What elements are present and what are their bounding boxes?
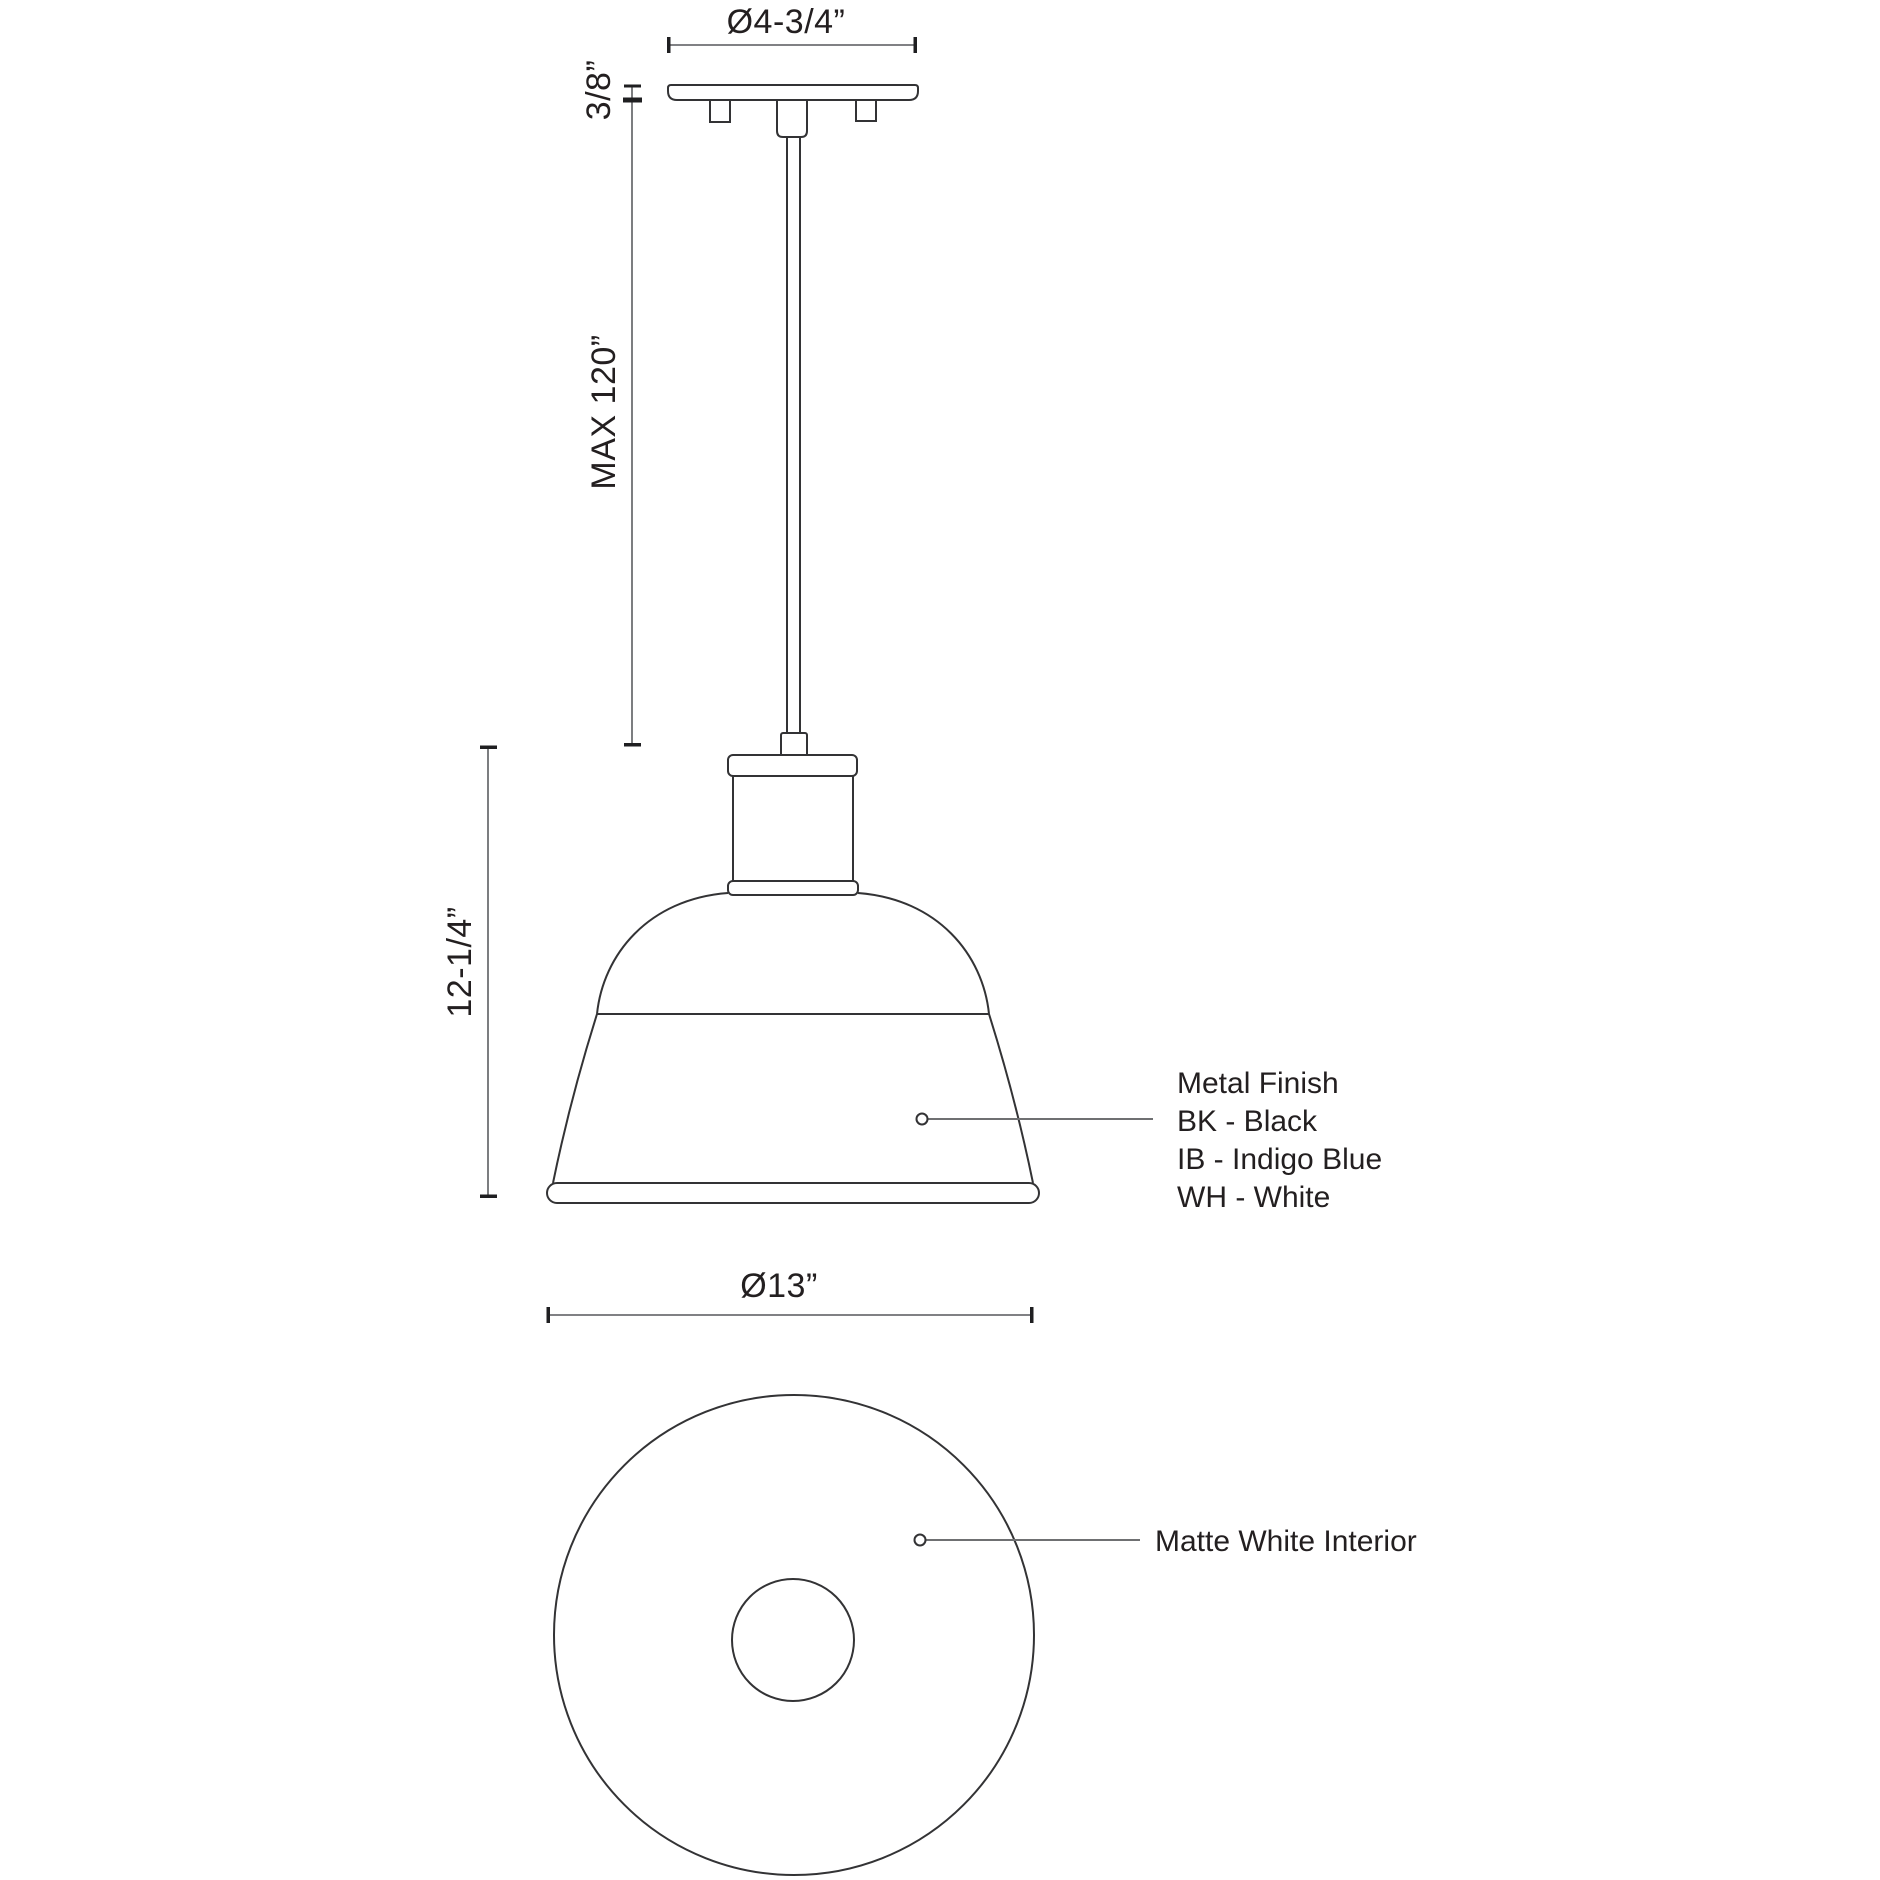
canopy-stem-holder [777, 100, 807, 137]
canopy-screw-left [710, 100, 730, 122]
fixture-side-view [547, 755, 1039, 1203]
neck-cylinder [733, 776, 853, 881]
dimension-tick [547, 1307, 551, 1323]
neck-band [728, 881, 858, 895]
canopy-side-view [668, 85, 918, 137]
shade-diameter-label: Ø13” [740, 1267, 818, 1305]
dimension-tick [1030, 1307, 1034, 1323]
neck-cap [728, 755, 857, 776]
shade-rim [547, 1183, 1039, 1203]
shade-lower-left-edge [553, 1014, 597, 1183]
canopy-screw-right [856, 100, 876, 121]
interior-label: Matte White Interior [1155, 1525, 1417, 1558]
metal-finish-title: Metal Finish [1177, 1067, 1339, 1100]
shade-dome-left-edge [597, 893, 728, 1014]
leader-dot [915, 1535, 926, 1546]
shade-socket-circle [732, 1579, 854, 1701]
shade-dome-right-edge [858, 893, 989, 1014]
dimension-tick [623, 98, 642, 103]
canopy-thickness-label: 3/8” [580, 60, 618, 121]
dimension-tick [480, 746, 497, 750]
shade-diameter-dimension: Ø13” [547, 1267, 1034, 1323]
dimension-tick [667, 37, 671, 53]
fixture-height-label: 12-1/4” [441, 906, 479, 1017]
canopy-diameter-dimension: Ø4-3/4” [667, 3, 917, 53]
canopy-plate [668, 85, 918, 100]
shade-outer-circle [554, 1395, 1034, 1875]
finish-option-wh: WH - White [1177, 1181, 1330, 1214]
dimension-tick [624, 743, 641, 747]
finish-option-bk: BK - Black [1177, 1105, 1318, 1138]
dimension-tick [624, 85, 641, 88]
stem-length-dimension: 3/8” MAX 120” [580, 60, 642, 747]
spec-drawing-page: Ø4-3/4” 3/8” MAX 120” [0, 0, 1880, 1880]
downrod-connector [781, 733, 807, 757]
leader-dot [917, 1114, 928, 1125]
shade-lower-right-edge [989, 1014, 1033, 1183]
finish-option-ib: IB - Indigo Blue [1177, 1143, 1382, 1176]
downrod [781, 137, 807, 757]
interior-callout: Matte White Interior [915, 1525, 1417, 1558]
fixture-height-dimension: 12-1/4” [441, 746, 497, 1199]
spec-drawing: Ø4-3/4” 3/8” MAX 120” [0, 0, 1880, 1880]
stem-max-length-label: MAX 120” [585, 334, 623, 489]
shade-bottom-view [554, 1395, 1034, 1875]
dimension-tick [914, 37, 918, 53]
dimension-tick [480, 1195, 497, 1199]
canopy-diameter-label: Ø4-3/4” [727, 3, 846, 41]
